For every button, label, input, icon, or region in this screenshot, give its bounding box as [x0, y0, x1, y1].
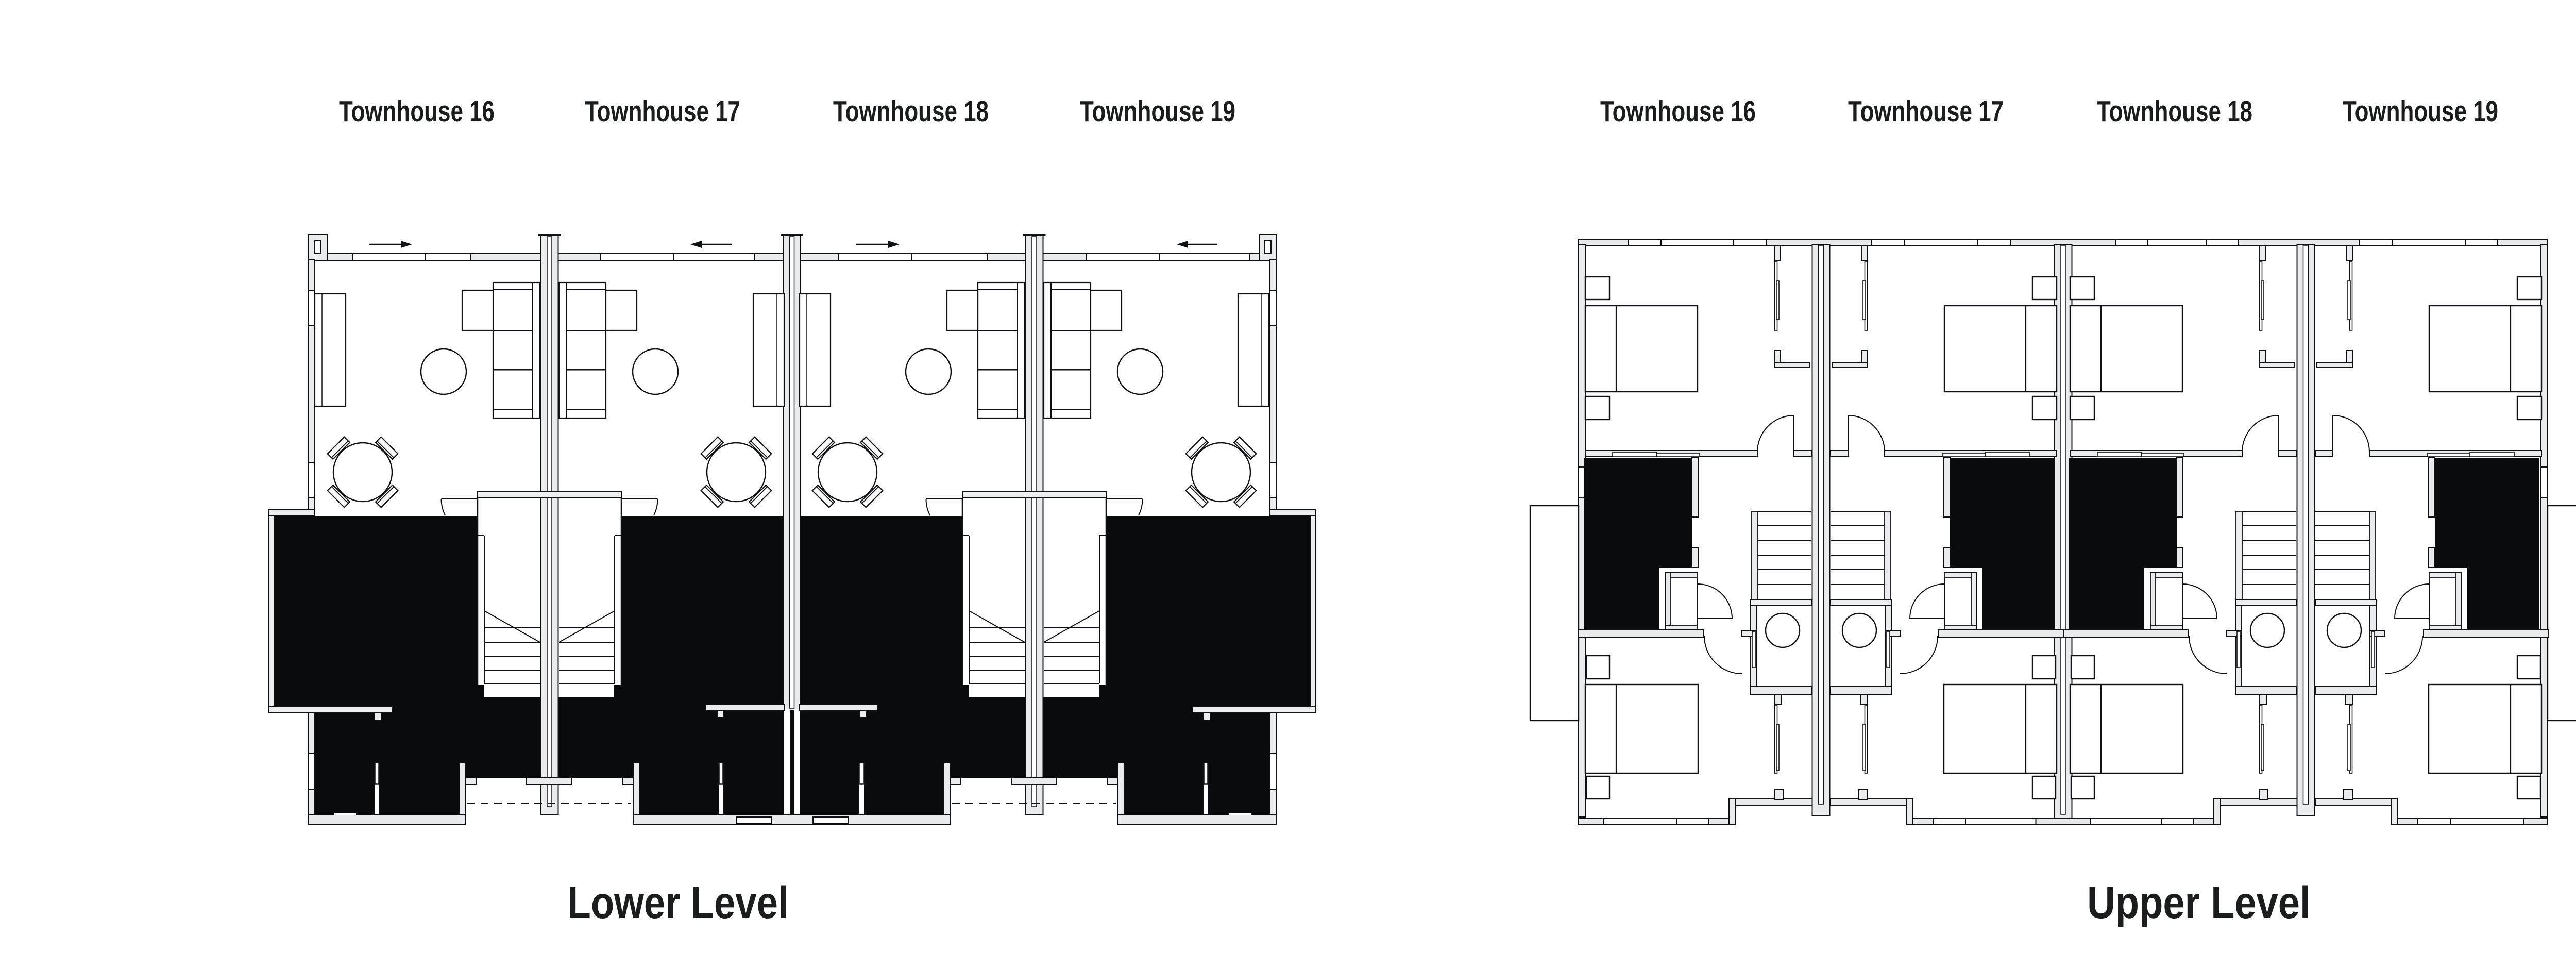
- svg-text:Townhouse 16: Townhouse 16: [1600, 95, 1756, 128]
- svg-text:Townhouse 18: Townhouse 18: [2097, 95, 2252, 128]
- svg-text:Townhouse 16: Townhouse 16: [339, 95, 495, 128]
- svg-text:Lower Level: Lower Level: [568, 878, 789, 928]
- svg-text:Townhouse 17: Townhouse 17: [1848, 95, 2004, 128]
- svg-text:Upper Level: Upper Level: [2087, 878, 2311, 928]
- svg-text:Townhouse 19: Townhouse 19: [2343, 95, 2498, 128]
- svg-text:Townhouse 18: Townhouse 18: [833, 95, 989, 128]
- svg-text:Townhouse 17: Townhouse 17: [585, 95, 740, 128]
- svg-text:Townhouse 19: Townhouse 19: [1080, 95, 1235, 128]
